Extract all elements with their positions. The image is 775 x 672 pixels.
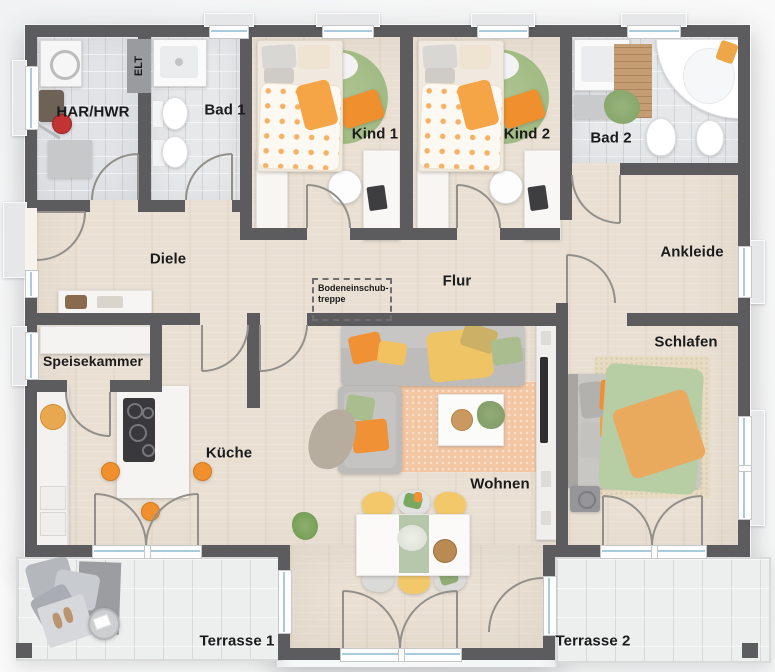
toilet2-icon [646,118,676,156]
room-label-kind1: Kind 1 [352,126,398,143]
door-mullion [398,648,405,662]
table-flowers [397,525,427,551]
wall-kind1-flur-a [252,228,307,240]
entry-door-opening [25,208,37,270]
room-label-wohnen: Wohnen [470,476,529,493]
burner-4 [142,444,155,457]
burner-1 [127,403,143,419]
window-ankleide [738,246,752,298]
wall-bad2-ankleide [620,163,750,175]
sofa-pillow-green [490,336,523,366]
flipflop-b [62,606,75,624]
pillow-kind2-b [459,45,491,69]
laptop-kind1 [366,185,387,211]
window-sill-ankleide [750,240,765,304]
wall-speisekammer-south-b [110,380,162,392]
sideboard-decor-tray [97,296,123,308]
glass-pane [30,68,32,128]
glass-pane [283,572,285,632]
window-speisekammer [25,332,39,380]
wall-kind2-flur-b [500,228,560,240]
tv-decor-a [541,331,551,345]
entry-porch-step [3,202,27,278]
laptop-kind2 [527,185,548,211]
bidet-icon [696,120,724,156]
plant-bad2 [604,90,640,124]
fruit-bowl-icon [40,404,66,430]
flipflop-a [51,612,64,630]
pillow-kind1-b [298,45,330,69]
floor-plan: Bodeneinschub- treppe HAR/HWR ELT Bad 1 … [0,0,775,672]
window-top-kind2 [477,25,529,39]
glass-pane [324,30,372,32]
washer-drum [50,50,80,80]
tv-icon [540,357,548,443]
room-label-diele: Diele [150,251,186,268]
room-label-terrasse2: Terrasse 2 [556,633,631,650]
kitchen-sink-cabinet-a [40,486,66,510]
sofa-pillow-yellow [377,340,408,366]
entry-sidelight-window [25,270,39,298]
glass-pane [548,578,550,634]
terrace-post-right [742,643,758,658]
burner-2 [142,407,154,419]
tv-sideboard [536,320,558,540]
floor-plant-wohnen [292,512,318,540]
desk-chair-kind2 [489,170,523,204]
toilet-icon [162,97,188,130]
pillow-kind2-c [425,68,455,84]
shower-drain [175,58,183,66]
loft-stairs-label-line1: Bodeneinschub- [318,283,388,294]
glass-pane [30,272,32,296]
loft-stairs-hatch: Bodeneinschub- treppe [312,278,392,321]
wall-bad1-kind1 [240,37,252,240]
pillow-kind1-a [261,44,297,70]
burner-3 [129,424,147,442]
decor-bowl [451,409,473,431]
window-top-kind1 [322,25,374,39]
window-mullion [738,465,752,472]
wall-kind1-flur-b [350,228,400,240]
door-mullion [651,545,658,559]
french-door-kueche [92,545,202,559]
kitchen-sink-cabinet-b [40,512,66,536]
chair-cloth-orange [414,492,422,502]
window-top-bad1 [209,25,249,39]
terrace-side-table [88,608,120,640]
bar-stool-1 [101,462,120,481]
french-door-wohnen [340,648,462,662]
window-sill-schlafen [750,410,765,526]
bar-stool-2 [193,462,212,481]
wall-diele-bad1-a [138,200,185,212]
glass-door-terrasse2 [543,576,557,636]
wall-ankleide-schlafen [627,313,738,326]
room-label-elt: ELT [133,56,145,76]
wall-kind2-flur-a [413,228,457,240]
dining-chair-2 [398,490,430,516]
washing-machine-icon [40,40,82,87]
window-har [25,66,39,130]
glass-door-terrasse1 [278,570,292,634]
room-label-ankleide: Ankleide [660,244,723,261]
sideboard-decor-bag [65,295,87,309]
table-plant [477,401,505,429]
door-mullion [144,545,151,559]
wall-kind1-kind2 [400,37,413,240]
storage-box [48,140,92,178]
coffee-table [438,394,504,446]
glass-pane [743,248,745,296]
glass-pane [479,30,527,32]
glass-pane [211,30,247,32]
wall-wohnen-schlafen [556,303,568,557]
room-label-terrasse1: Terrasse 1 [200,633,275,650]
pantry-shelf [40,326,154,354]
loft-stairs-label-line2: treppe [318,294,388,305]
sink-icon [162,136,188,168]
kitchen-island [117,386,189,498]
room-label-schlafen: Schlafen [654,334,717,351]
room-label-bad2: Bad 2 [590,130,631,147]
dining-table [356,514,470,576]
cooktop-icon [123,398,155,462]
glass-pane [629,30,679,32]
terrace-book [92,614,111,631]
bedside-speaker [570,486,600,512]
wall-kueche-wohnen-stub [247,313,260,408]
chaise-pillow-orange [350,418,389,454]
window-schlafen [738,416,752,520]
room-label-speisekammer: Speisekammer [43,353,143,369]
desk-chair-kind1 [328,170,362,204]
table-bowl [433,539,457,563]
wall-kind2-bad2 [560,37,572,220]
pillow-kind1-c [264,68,294,84]
shower-icon [153,39,207,87]
glass-pane [30,334,32,378]
tv-decor-c [541,511,551,525]
wall-speisekammer-south-a [25,380,67,392]
bar-stool-3 [141,502,160,521]
window-top-bad2 [627,25,681,39]
room-label-kueche: Küche [206,445,252,462]
speaker-cone [578,491,596,509]
room-label-flur: Flur [443,273,472,290]
terrace-post-left [16,643,32,658]
wall-flur-south-a [25,313,200,325]
french-door-schlafen [600,545,707,559]
tv-decor-b [541,471,551,487]
pillow-kind2-a [422,44,458,70]
room-label-kind2: Kind 2 [504,126,550,143]
room-label-bad1: Bad 1 [204,102,245,119]
room-label-har-hwr: HAR/HWR [56,104,129,121]
